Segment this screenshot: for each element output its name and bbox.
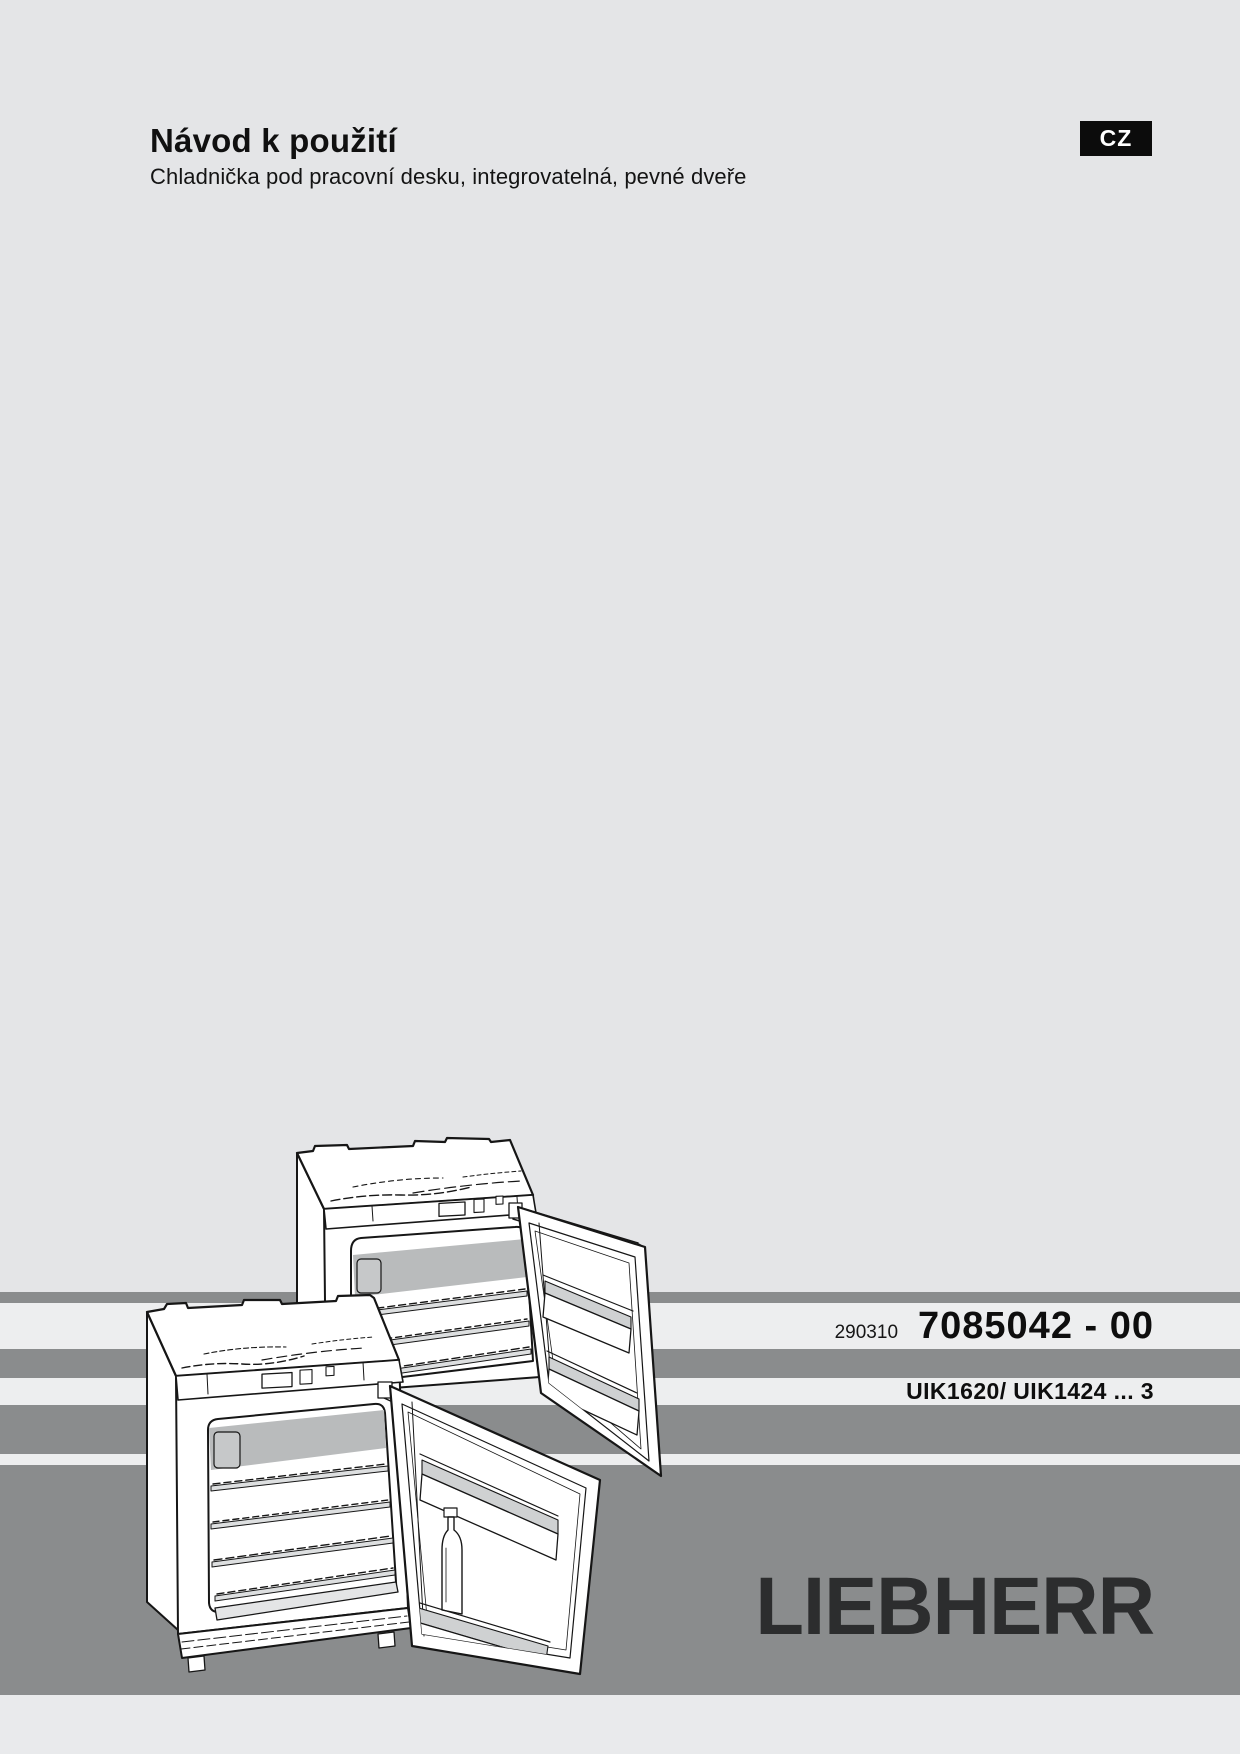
page-title: Návod k použití — [150, 122, 747, 160]
document-code-row: 290310 7085042 - 00 — [835, 1303, 1154, 1349]
stripe-light-bottom — [0, 1695, 1240, 1754]
print-code: 290310 — [835, 1312, 898, 1354]
language-badge: CZ — [1080, 121, 1152, 156]
title-block: Návod k použití Chladnička pod pracovní … — [150, 122, 747, 190]
liebherr-logo: LIEBHERR — [755, 1566, 1154, 1648]
front-fridge-illustration — [112, 1290, 636, 1694]
page-subtitle: Chladnička pod pracovní desku, integrova… — [150, 164, 747, 190]
model-designation: UIK1620/ UIK1424 ... 3 — [906, 1378, 1154, 1405]
document-number: 7085042 - 00 — [918, 1303, 1154, 1349]
manual-cover-page: Návod k použití Chladnička pod pracovní … — [0, 0, 1240, 1754]
